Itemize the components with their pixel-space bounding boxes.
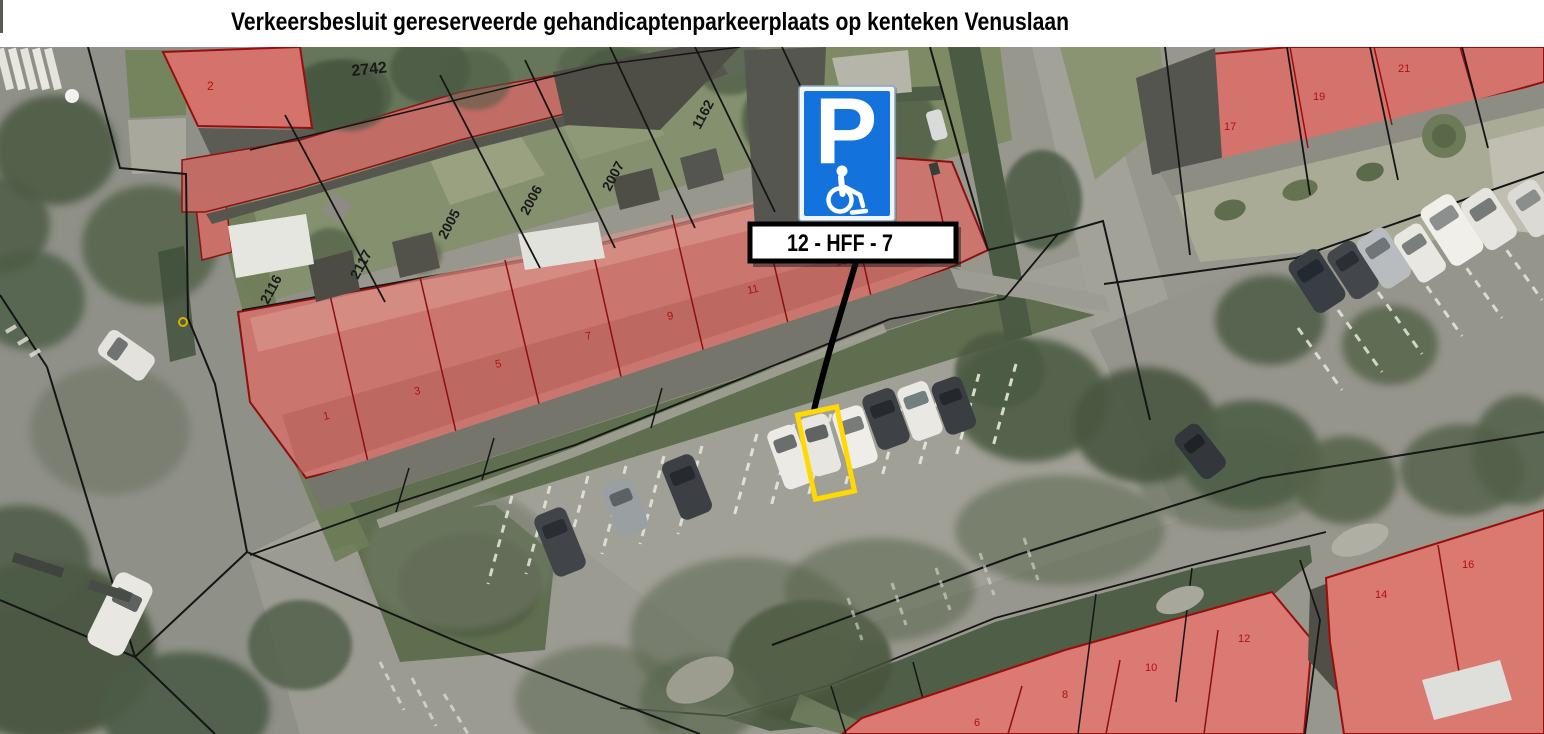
svg-text:8: 8 xyxy=(1062,689,1068,701)
svg-text:Verkeersbesluit gereserveerde: Verkeersbesluit gereserveerde gehandicap… xyxy=(231,8,1069,36)
svg-text:2: 2 xyxy=(207,79,214,93)
svg-text:16: 16 xyxy=(1462,559,1474,571)
svg-text:19: 19 xyxy=(1313,91,1325,103)
svg-text:12: 12 xyxy=(1238,633,1250,645)
svg-text:12 - HFF - 7: 12 - HFF - 7 xyxy=(787,230,893,257)
svg-text:21: 21 xyxy=(1398,63,1410,75)
svg-text:6: 6 xyxy=(974,717,980,729)
svg-text:11: 11 xyxy=(746,283,760,297)
svg-text:14: 14 xyxy=(1375,589,1387,601)
svg-text:10: 10 xyxy=(1145,662,1157,674)
svg-text:17: 17 xyxy=(1224,121,1236,133)
